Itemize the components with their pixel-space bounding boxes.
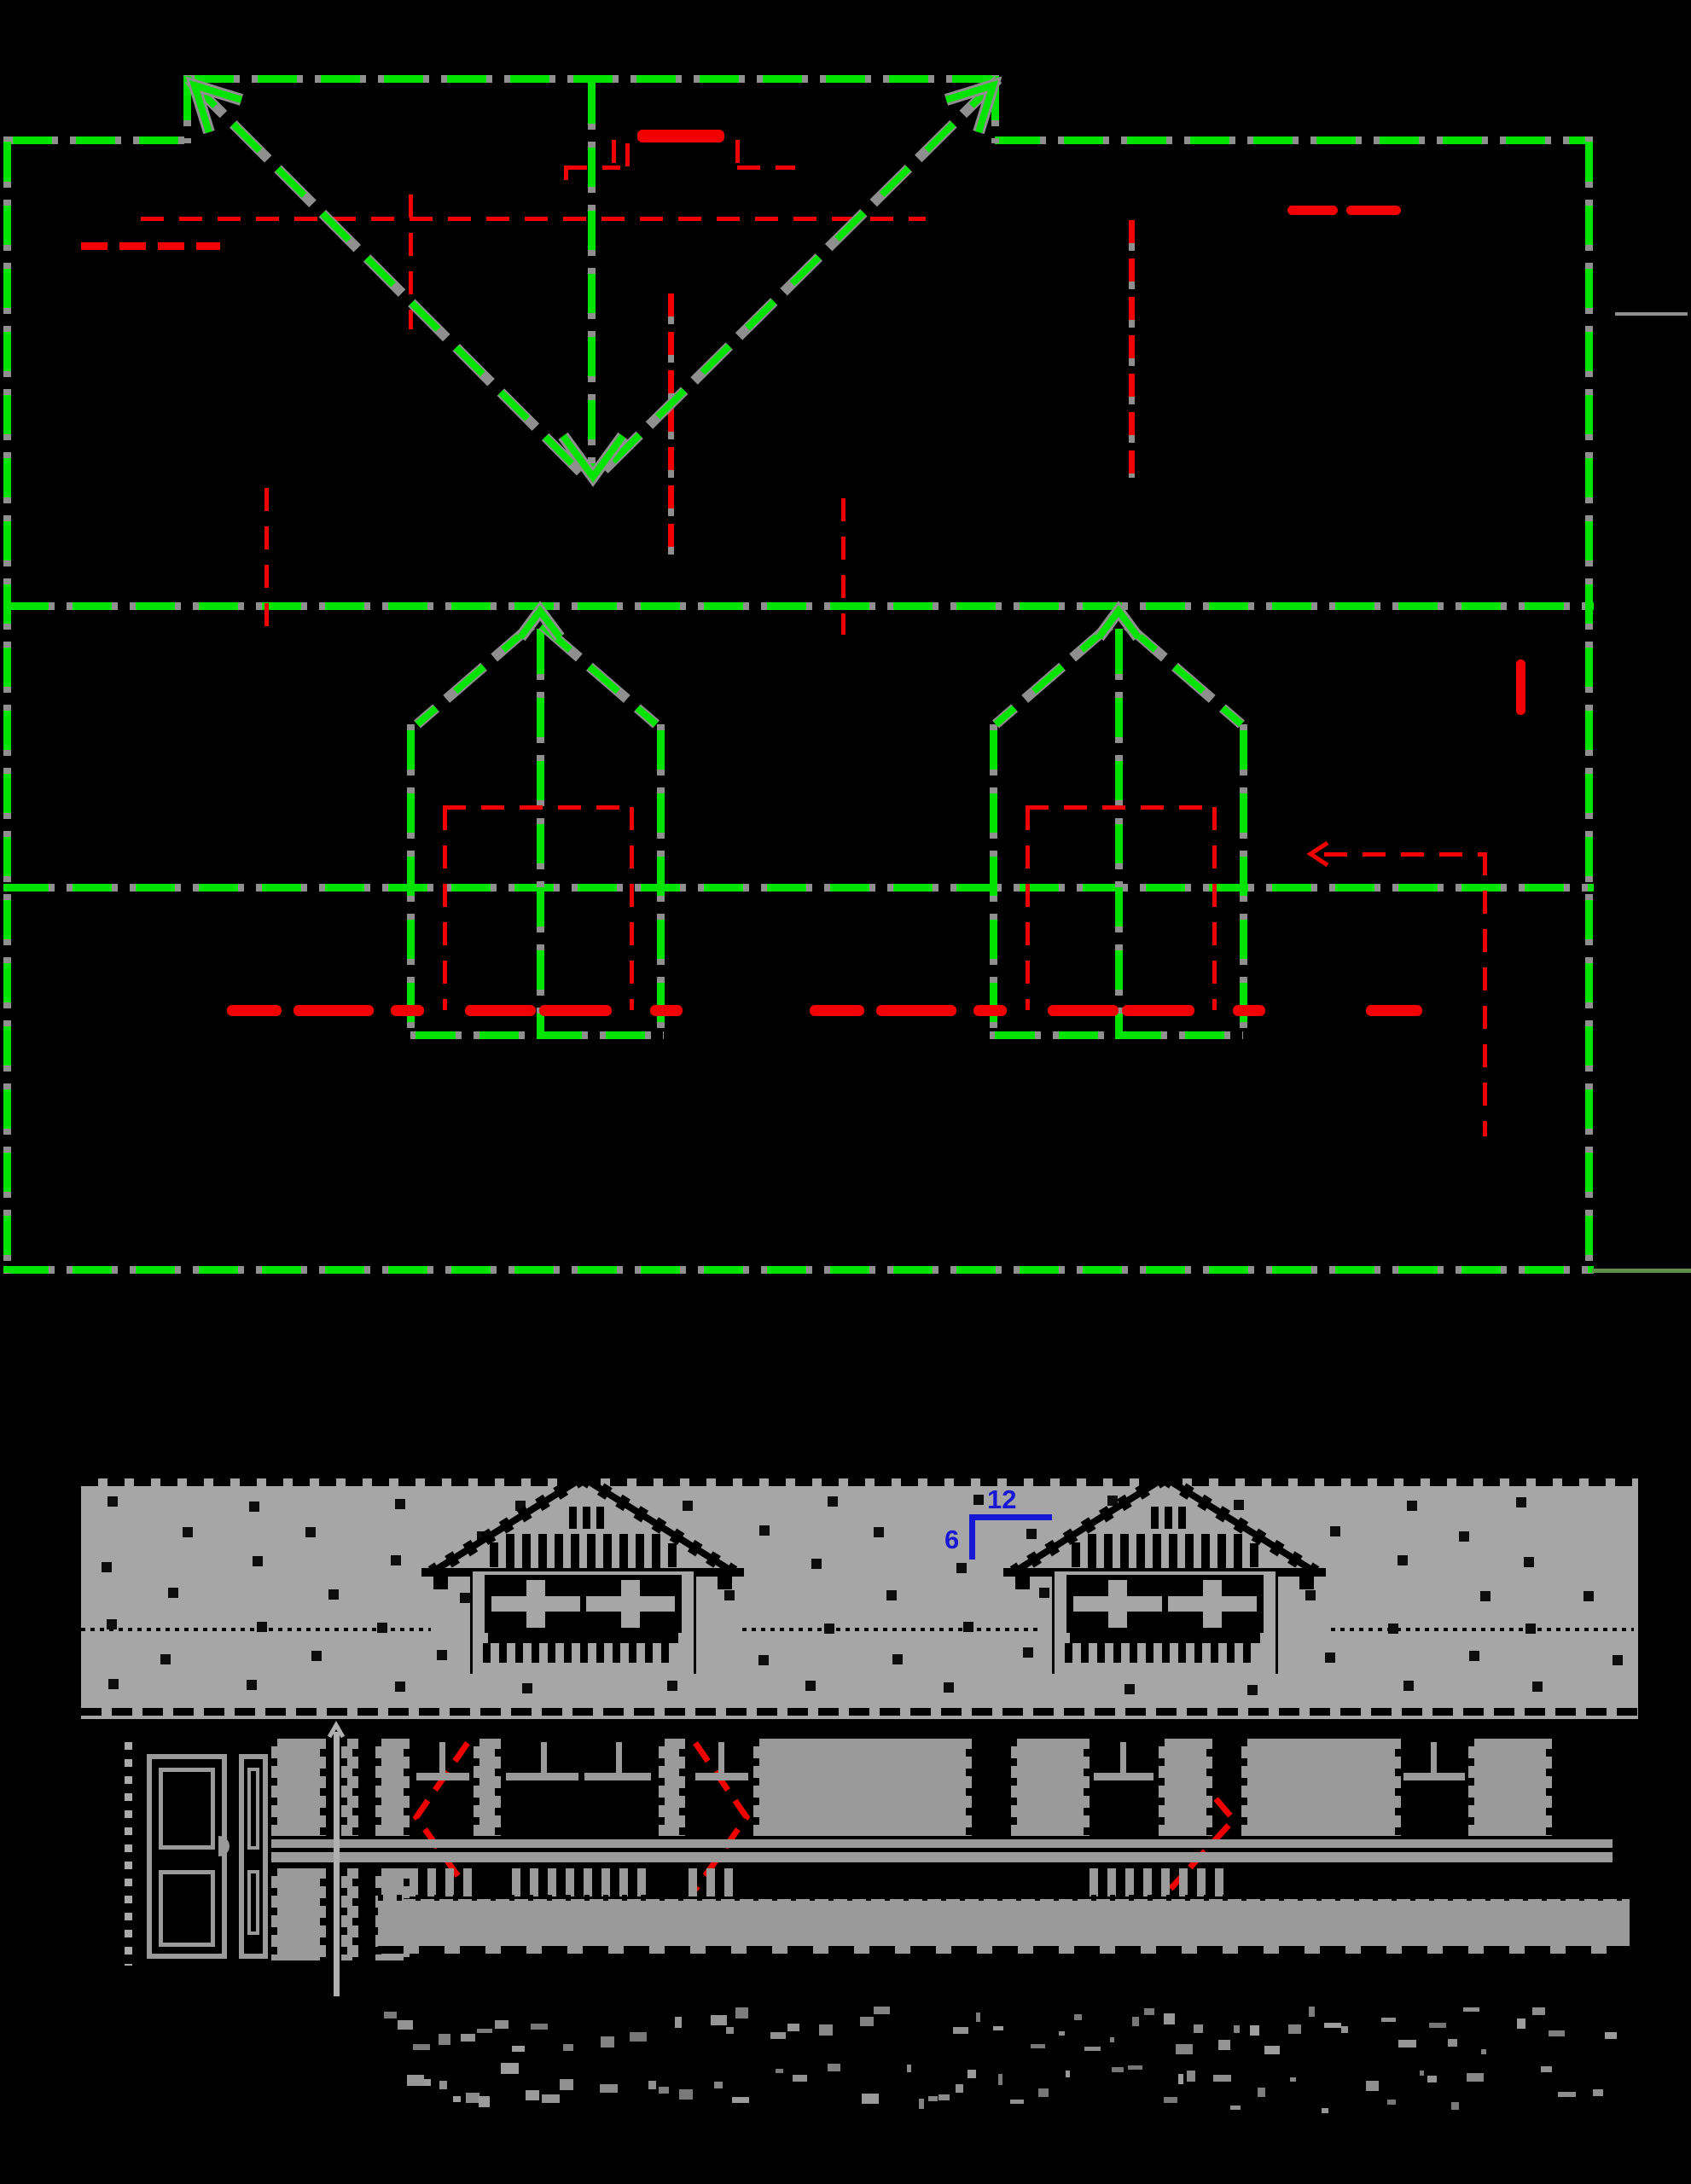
caption-noise-glyph <box>1066 2071 1070 2077</box>
section-picket <box>584 1868 592 1896</box>
caption-noise-glyph <box>1230 2106 1241 2110</box>
caption-noise-glyph <box>466 2093 479 2103</box>
dormer-gable-slat <box>1136 1534 1145 1568</box>
plan-dormer1-slope-right <box>542 625 656 724</box>
dormer-sill-picket <box>515 1643 523 1663</box>
section-wall-block <box>1159 1739 1212 1836</box>
elevation-top-dash-edge <box>81 1478 1638 1486</box>
caption-noise-glyph <box>1194 2024 1203 2033</box>
stucco-speck <box>1469 1651 1479 1661</box>
stucco-speck <box>1407 1501 1417 1511</box>
door-hinge-dot-line <box>125 1742 132 1966</box>
dormer-gable-slat <box>652 1534 660 1568</box>
section-picket <box>410 1868 418 1896</box>
caption-noise-glyph <box>384 2012 397 2018</box>
caption-noise-glyph <box>675 2017 682 2028</box>
section-picket <box>427 1868 436 1896</box>
stucco-speck <box>892 1654 903 1664</box>
dormer-gable-slat <box>636 1534 644 1568</box>
stucco-speck <box>724 1590 735 1600</box>
cad-drawing-stage: 12 6 <box>0 0 1691 2184</box>
stucco-speck <box>1524 1557 1534 1567</box>
stucco-speck <box>1532 1682 1543 1692</box>
dormer-sill-picket <box>483 1643 491 1663</box>
caption-noise-glyph <box>1451 2102 1459 2110</box>
section-t-stub-cap <box>1403 1773 1465 1780</box>
stucco-speck <box>247 1680 257 1690</box>
caption-noise-glyph <box>424 2079 431 2086</box>
dormer-gable-slat <box>1165 1507 1172 1529</box>
stucco-speck <box>108 1679 119 1689</box>
dormer-sill-picket <box>1097 1643 1105 1663</box>
caption-noise-glyph <box>1112 2067 1124 2072</box>
door-sidelight-slot-top <box>247 1768 259 1850</box>
caption-noise-glyph <box>793 2075 807 2082</box>
stucco-speck <box>1613 1655 1623 1665</box>
section-picket <box>1143 1868 1152 1896</box>
dormer-eave-end-right <box>1299 1571 1314 1589</box>
pitch-run-line <box>969 1514 1052 1520</box>
caption-noise-glyph <box>526 2090 539 2100</box>
stucco-speck <box>886 1590 897 1600</box>
plan-valley-left <box>189 79 586 478</box>
stucco-speck <box>956 1563 967 1573</box>
section-wall-block <box>1468 1739 1552 1836</box>
dormer-gable-slat <box>1250 1543 1258 1567</box>
caption-noise-glyph <box>1387 2100 1396 2105</box>
caption-noise-glyph <box>735 2007 748 2018</box>
dormer-gable-slat <box>538 1534 547 1568</box>
door-panel-bottom <box>159 1870 215 1947</box>
caption-noise-glyph <box>1010 2100 1024 2104</box>
caption-noise-glyph <box>1059 2031 1065 2036</box>
dormer-gable-slat <box>1120 1534 1129 1568</box>
stucco-speck <box>183 1527 193 1537</box>
section-picket <box>724 1868 733 1896</box>
dormer-gable-slat <box>1201 1534 1210 1568</box>
caption-noise-glyph <box>1164 2097 1177 2103</box>
caption-noise-glyph <box>600 2084 618 2093</box>
dormer1-ridge-arrow-up-icon <box>520 611 560 637</box>
dormer-gable-slat <box>619 1534 628 1568</box>
dormer-gable-slat <box>668 1543 677 1567</box>
caption-noise-glyph <box>1517 2018 1525 2029</box>
leader-arrow-left-icon <box>1310 843 1328 865</box>
dormer-gable-slat <box>1178 1507 1186 1529</box>
stucco-speck <box>1023 1647 1033 1658</box>
stucco-speck <box>460 1593 470 1603</box>
dormer-gable-slat <box>1151 1507 1159 1529</box>
section-t-stub-stem <box>541 1742 547 1776</box>
dormer-eave-end-left <box>1015 1571 1030 1589</box>
caption-noise-glyph <box>1187 2071 1195 2082</box>
caption-noise-glyph <box>770 2032 786 2039</box>
caption-noise-glyph <box>968 2070 976 2078</box>
plan-dormer1-slope-left <box>417 625 532 724</box>
dormer-gable-slat <box>506 1534 514 1568</box>
dormer-sill-picket <box>548 1643 555 1663</box>
dormer-window-mullion-v <box>1203 1580 1222 1628</box>
dormer-gable-slat <box>1153 1534 1161 1568</box>
dormer-sill-picket <box>564 1643 572 1663</box>
caption-noise-glyph <box>601 2036 614 2047</box>
section-post <box>341 1868 358 1960</box>
caption-noise-glyph <box>1234 2025 1240 2033</box>
stucco-speck <box>522 1683 532 1693</box>
dormer-sill-picket <box>1227 1643 1235 1663</box>
caption-noise-glyph <box>1164 2013 1175 2024</box>
dormer-sill-picket <box>1194 1643 1202 1663</box>
caption-noise-glyph <box>398 2020 413 2030</box>
caption-noise-glyph <box>1074 2014 1082 2020</box>
dormer-sill-picket <box>1146 1643 1153 1663</box>
plan-dormer2-slope-right <box>1127 625 1241 724</box>
dormer-sill-picket <box>1243 1643 1251 1663</box>
caption-noise-glyph <box>512 2046 525 2052</box>
stucco-speck <box>1583 1591 1594 1601</box>
dormer-sill-picket <box>661 1643 669 1663</box>
dormer-sill-picket <box>645 1643 653 1663</box>
caption-noise-glyph <box>659 2087 669 2094</box>
section-picket <box>566 1868 574 1896</box>
caption-noise-glyph <box>1309 2007 1315 2017</box>
dormer-window-mullion-v <box>621 1580 640 1628</box>
dormer-sill-picket <box>1065 1643 1072 1663</box>
dormer-gable-slat <box>603 1534 612 1568</box>
section-t-stub-stem <box>616 1742 622 1776</box>
caption-noise-glyph <box>495 2020 508 2029</box>
stucco-speck <box>253 1556 263 1566</box>
dormer-sill-picket <box>499 1643 507 1663</box>
section-ref-line <box>334 1732 340 1996</box>
caption-noise-glyph <box>776 2069 783 2073</box>
section-picket <box>463 1868 472 1896</box>
caption-noise-glyph <box>630 2032 647 2042</box>
stucco-speck <box>1305 1590 1316 1600</box>
plan-dormer2-slope-left <box>996 625 1110 724</box>
dormer-gable-slat <box>555 1534 563 1568</box>
stucco-speck <box>168 1588 178 1598</box>
caption-noise-glyph <box>1381 2018 1396 2022</box>
dormer-eave-end-left <box>433 1571 448 1589</box>
caption-noise-glyph <box>1031 2044 1045 2048</box>
dormer-sill-picket <box>1162 1643 1170 1663</box>
dormer-sill-picket <box>629 1643 636 1663</box>
stucco-speck <box>1403 1681 1414 1691</box>
section-picket <box>689 1868 697 1896</box>
caption-noise-glyph <box>679 2089 693 2100</box>
dormer-sill-picket <box>1081 1643 1089 1663</box>
stucco-speck <box>305 1527 316 1537</box>
caption-noise-glyph <box>1593 2089 1603 2096</box>
elevation-mid-dotted-1 <box>742 1628 1041 1631</box>
caption-noise-glyph <box>919 2099 924 2109</box>
section-t-stub-stem <box>1431 1742 1437 1776</box>
caption-noise-glyph <box>1250 2025 1259 2036</box>
caption-noise-glyph <box>453 2096 461 2102</box>
stucco-speck <box>249 1501 259 1512</box>
dormer-gable-slat <box>1104 1534 1113 1568</box>
section-t-stub-stem <box>718 1742 724 1776</box>
stucco-speck <box>759 1525 770 1536</box>
dormer-gable-slat <box>1234 1534 1242 1568</box>
caption-noise-glyph <box>1532 2007 1545 2015</box>
section-wall-block <box>659 1739 685 1836</box>
stucco-speck <box>973 1495 984 1505</box>
stucco-speck <box>328 1589 339 1600</box>
section-t-stub-stem <box>439 1742 445 1776</box>
section-post <box>375 1739 410 1836</box>
caption-noise-glyph <box>907 2065 911 2072</box>
section-t-stub-cap <box>695 1773 748 1780</box>
caption-noise-glyph <box>413 2044 430 2050</box>
section-wall-block <box>1011 1739 1090 1836</box>
caption-noise-glyph <box>1178 2074 1183 2084</box>
pitch-run-value: 6 <box>944 1526 959 1553</box>
caption-noise-glyph <box>461 2034 475 2042</box>
caption-noise-glyph <box>874 2007 890 2014</box>
section-picket <box>637 1868 646 1896</box>
caption-noise-glyph <box>439 2081 447 2089</box>
dormer-gable-slat <box>571 1534 579 1568</box>
caption-noise-glyph <box>732 2097 749 2103</box>
caption-noise-glyph <box>1463 2007 1479 2012</box>
caption-noise-glyph <box>1427 2076 1437 2082</box>
caption-noise-glyph <box>1481 2049 1486 2054</box>
stucco-speck <box>758 1655 769 1665</box>
caption-noise-glyph <box>1128 2065 1142 2070</box>
caption-noise-glyph <box>439 2034 450 2045</box>
caption-noise-glyph <box>1605 2032 1617 2039</box>
pitch-rise-value: 12 <box>987 1486 1016 1513</box>
stucco-speck <box>391 1555 401 1565</box>
stucco-speck <box>257 1622 267 1632</box>
section-picket <box>1179 1868 1188 1896</box>
section-post <box>341 1739 358 1836</box>
dormer-sill-picket <box>532 1643 539 1663</box>
dormer-sill-picket <box>1113 1643 1121 1663</box>
caption-noise-glyph <box>993 2026 1003 2030</box>
caption-noise-glyph <box>648 2081 656 2089</box>
pitch-rise-line <box>969 1514 975 1560</box>
section-picket <box>619 1868 628 1896</box>
stucco-speck <box>1247 1685 1258 1695</box>
dormer-gable-slat <box>490 1542 498 1567</box>
caption-noise-glyph <box>1213 2075 1231 2082</box>
dormer-gable-slat <box>1088 1534 1096 1568</box>
caption-noise-glyph <box>1448 2039 1457 2047</box>
caption-noise-glyph <box>1264 2046 1280 2054</box>
elevation-mid-dotted-2 <box>1331 1628 1634 1631</box>
caption-noise-glyph <box>726 2027 734 2034</box>
stucco-speck <box>828 1496 838 1507</box>
caption-noise-glyph <box>1288 2024 1301 2034</box>
elevation-bottom-dash-edge <box>81 1708 1638 1716</box>
dormer-gable-slat <box>587 1534 596 1568</box>
caption-noise-glyph <box>787 2024 799 2031</box>
dormer-window-mullion-v <box>526 1580 545 1628</box>
caption-noise-glyph <box>563 2044 573 2051</box>
dormer-window-sill <box>488 1633 678 1643</box>
stucco-speck <box>1480 1591 1491 1601</box>
dormer-window-mullion-v <box>1108 1580 1127 1628</box>
stucco-speck <box>1516 1497 1526 1507</box>
caption-noise-glyph <box>542 2094 560 2103</box>
dormer-gable-slat <box>583 1507 590 1529</box>
caption-noise-glyph <box>1366 2081 1379 2091</box>
stucco-speck <box>107 1619 117 1629</box>
dormer-gable-slat <box>1072 1542 1080 1567</box>
caption-noise-glyph <box>1541 2066 1552 2072</box>
section-picket <box>1107 1868 1116 1896</box>
section-picket <box>1215 1868 1223 1896</box>
section-picket <box>548 1868 556 1896</box>
door-panel-top <box>159 1768 215 1850</box>
section-rail-lower <box>271 1852 1613 1862</box>
caption-noise-glyph <box>1324 2023 1341 2028</box>
dormer2-ridge-arrow-up-icon <box>1099 611 1138 637</box>
caption-noise-glyph <box>1420 2071 1424 2076</box>
section-wall-block <box>1241 1739 1401 1836</box>
caption-noise-glyph <box>860 2017 874 2026</box>
caption-noise-glyph <box>928 2096 938 2101</box>
caption-noise-glyph <box>819 2024 833 2036</box>
stucco-speck <box>805 1681 816 1691</box>
caption-noise-glyph <box>1549 2030 1565 2036</box>
caption-noise-glyph <box>1144 2008 1154 2015</box>
stucco-speck <box>1459 1531 1469 1542</box>
dormer-gable-slat <box>569 1507 577 1529</box>
dormer-sill-picket <box>613 1643 620 1663</box>
section-picket <box>601 1868 610 1896</box>
stucco-speck <box>824 1623 834 1634</box>
stucco-speck <box>160 1654 171 1664</box>
section-post <box>271 1868 326 1960</box>
caption-noise-glyph <box>560 2079 573 2090</box>
stucco-speck <box>1525 1623 1536 1634</box>
caption-noise-glyph <box>938 2094 950 2100</box>
stucco-speck <box>395 1682 405 1692</box>
caption-noise-glyph <box>407 2075 424 2086</box>
caption-noise-glyph <box>1322 2108 1328 2113</box>
stucco-speck <box>1388 1623 1398 1634</box>
stucco-speck <box>102 1562 112 1572</box>
caption-noise-glyph <box>1110 2037 1114 2042</box>
caption-noise-glyph <box>1429 2023 1446 2028</box>
dormer-gable-slat <box>1217 1534 1226 1568</box>
caption-noise-glyph <box>1258 2088 1265 2097</box>
section-picket <box>1125 1868 1134 1896</box>
section-picket <box>512 1868 520 1896</box>
foundation-bottom-dash <box>378 1946 1630 1954</box>
section-picket <box>1090 1868 1098 1896</box>
section-picket <box>445 1868 454 1896</box>
section-t-stub-cap <box>506 1773 578 1780</box>
caption-noise-glyph <box>976 2013 980 2022</box>
caption-noise-glyph <box>477 2029 492 2033</box>
caption-noise-glyph <box>1558 2092 1576 2097</box>
caption-noise-glyph <box>1398 2040 1416 2047</box>
section-picket <box>1161 1868 1170 1896</box>
caption-noise-text <box>371 2003 1617 2119</box>
stucco-speck <box>667 1681 677 1691</box>
stucco-speck <box>437 1650 447 1660</box>
caption-noise-glyph <box>1132 2017 1139 2026</box>
caption-noise-glyph <box>479 2096 490 2107</box>
stucco-speck <box>874 1527 884 1537</box>
stucco-speck <box>1398 1555 1408 1565</box>
caption-noise-glyph <box>1218 2040 1230 2050</box>
dormer-gable-slat <box>1185 1534 1194 1568</box>
section-t-stub-cap <box>416 1773 469 1780</box>
caption-noise-glyph <box>862 2094 879 2104</box>
foundation-top-ticks <box>378 1895 1630 1901</box>
dormer-sill-picket <box>580 1643 588 1663</box>
caption-noise-glyph <box>1467 2073 1484 2082</box>
dormer-sill-picket <box>1178 1643 1186 1663</box>
caption-noise-glyph <box>998 2074 1002 2085</box>
section-t-stub-stem <box>1120 1742 1126 1776</box>
stucco-speck <box>944 1682 954 1693</box>
door-sidelight-slot-bottom <box>247 1870 259 1935</box>
section-post <box>271 1739 326 1836</box>
caption-noise-glyph <box>1084 2047 1101 2051</box>
dormer-eave-end-right <box>718 1571 732 1589</box>
stucco-speck <box>811 1559 822 1569</box>
caption-noise-glyph <box>714 2082 723 2088</box>
section-picket <box>1197 1868 1206 1896</box>
stucco-speck <box>395 1499 405 1509</box>
caption-noise-glyph <box>1038 2088 1049 2097</box>
section-picket <box>706 1868 715 1896</box>
section-picket <box>530 1868 538 1896</box>
caption-noise-glyph <box>828 2064 840 2071</box>
dormer-sill-picket <box>1211 1643 1218 1663</box>
section-wall-block <box>474 1739 501 1836</box>
stucco-speck <box>311 1651 322 1661</box>
stucco-speck <box>1124 1684 1135 1694</box>
stucco-speck <box>963 1622 973 1632</box>
caption-noise-glyph <box>1176 2044 1193 2054</box>
section-t-stub-cap <box>584 1773 651 1780</box>
stucco-speck <box>377 1623 387 1633</box>
section-wall-block <box>753 1739 972 1836</box>
caption-noise-glyph <box>711 2015 727 2025</box>
caption-noise-glyph <box>1290 2077 1296 2082</box>
caption-noise-glyph <box>1341 2026 1348 2033</box>
dormer-sill-picket <box>596 1643 604 1663</box>
dormer-gable-slat <box>1169 1534 1177 1568</box>
section-t-stub-cap <box>1094 1773 1153 1780</box>
stucco-speck <box>108 1496 118 1507</box>
section-rail-upper <box>271 1839 1613 1848</box>
dormer-sill-picket <box>1130 1643 1137 1663</box>
caption-noise-glyph <box>956 2084 963 2093</box>
dormer-window-sill <box>1070 1633 1260 1643</box>
dormer-gable-slat <box>522 1534 531 1568</box>
caption-noise-glyph <box>501 2063 519 2074</box>
stucco-speck <box>1330 1526 1340 1536</box>
caption-noise-glyph <box>953 2027 968 2034</box>
stucco-speck <box>1325 1653 1335 1663</box>
caption-noise-glyph <box>531 2024 548 2030</box>
dormer-gable-slat <box>596 1507 604 1529</box>
